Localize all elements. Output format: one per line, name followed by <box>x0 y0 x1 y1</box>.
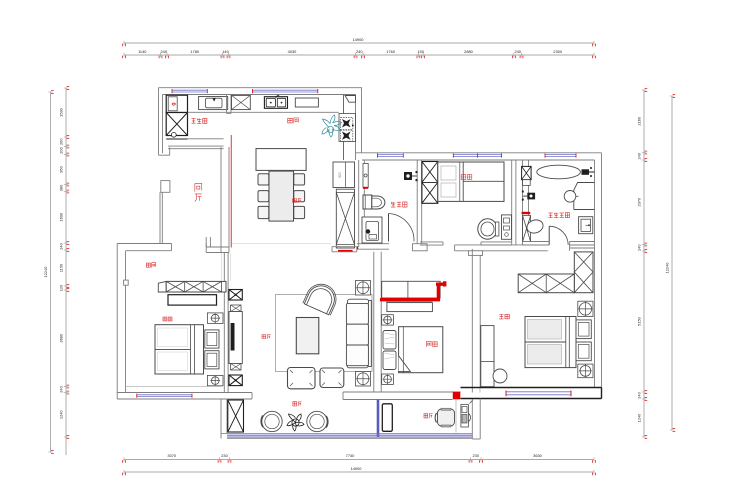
svg-text:240: 240 <box>637 391 642 398</box>
svg-text:5150: 5150 <box>637 316 642 325</box>
svg-text:950: 950 <box>59 165 64 172</box>
svg-text:240: 240 <box>356 49 363 54</box>
svg-text:4030: 4030 <box>288 49 297 54</box>
svg-text:3070: 3070 <box>167 453 176 458</box>
svg-text:200: 200 <box>59 138 64 145</box>
svg-text:240: 240 <box>161 49 168 54</box>
svg-text:1140: 1140 <box>138 49 147 54</box>
svg-text:7740: 7740 <box>346 453 355 458</box>
svg-text:1690: 1690 <box>59 212 64 221</box>
svg-text:14900: 14900 <box>351 466 363 471</box>
svg-text:240: 240 <box>637 152 642 159</box>
svg-text:1780: 1780 <box>190 49 199 54</box>
svg-text:2880: 2880 <box>464 49 473 54</box>
svg-text:3680: 3680 <box>59 333 64 342</box>
svg-text:140: 140 <box>222 49 229 54</box>
svg-text:240: 240 <box>514 49 521 54</box>
svg-text:1530: 1530 <box>59 107 64 116</box>
svg-text:2160: 2160 <box>637 116 642 125</box>
svg-text:1760: 1760 <box>386 49 395 54</box>
svg-text:2970: 2970 <box>637 197 642 206</box>
svg-text:230: 230 <box>221 453 228 458</box>
svg-text:12240: 12240 <box>665 262 670 274</box>
svg-text:12240: 12240 <box>43 266 48 278</box>
svg-text:200: 200 <box>59 146 64 153</box>
svg-text:120: 120 <box>59 284 64 291</box>
svg-text:14900: 14900 <box>353 37 365 42</box>
svg-text:230: 230 <box>473 453 480 458</box>
svg-text:920: 920 <box>338 172 342 178</box>
svg-text:1240: 1240 <box>59 410 64 419</box>
svg-text:1150: 1150 <box>59 263 64 272</box>
svg-text:2300: 2300 <box>553 49 562 54</box>
svg-text:240: 240 <box>59 242 64 249</box>
svg-text:380: 380 <box>59 184 64 191</box>
svg-text:1240: 1240 <box>637 413 642 422</box>
svg-text:240: 240 <box>637 244 642 251</box>
svg-text:150: 150 <box>418 49 425 54</box>
svg-text:240: 240 <box>59 385 64 392</box>
svg-text:3630: 3630 <box>533 453 542 458</box>
